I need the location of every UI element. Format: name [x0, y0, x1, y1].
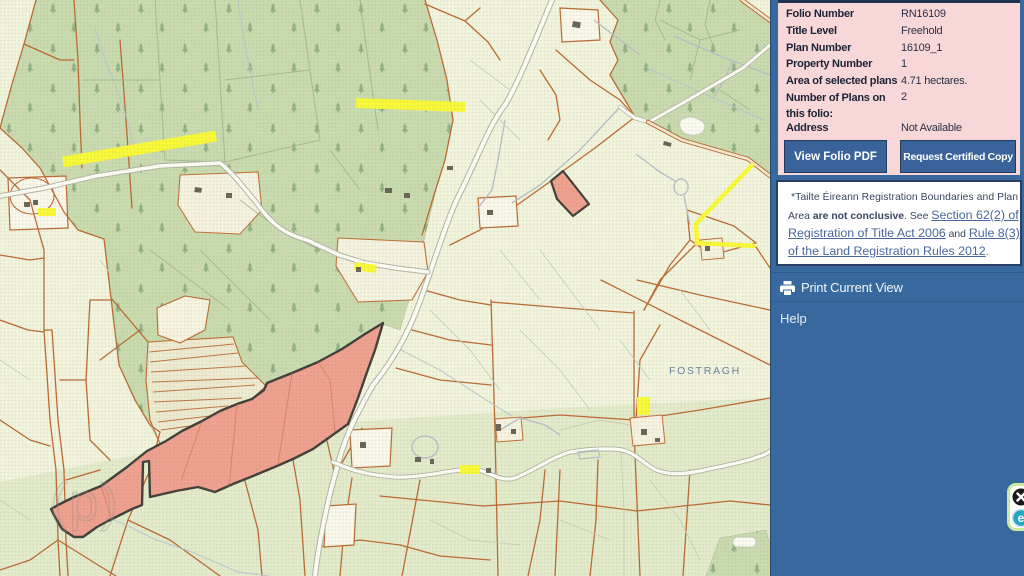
svg-text:e: e — [1018, 511, 1024, 525]
